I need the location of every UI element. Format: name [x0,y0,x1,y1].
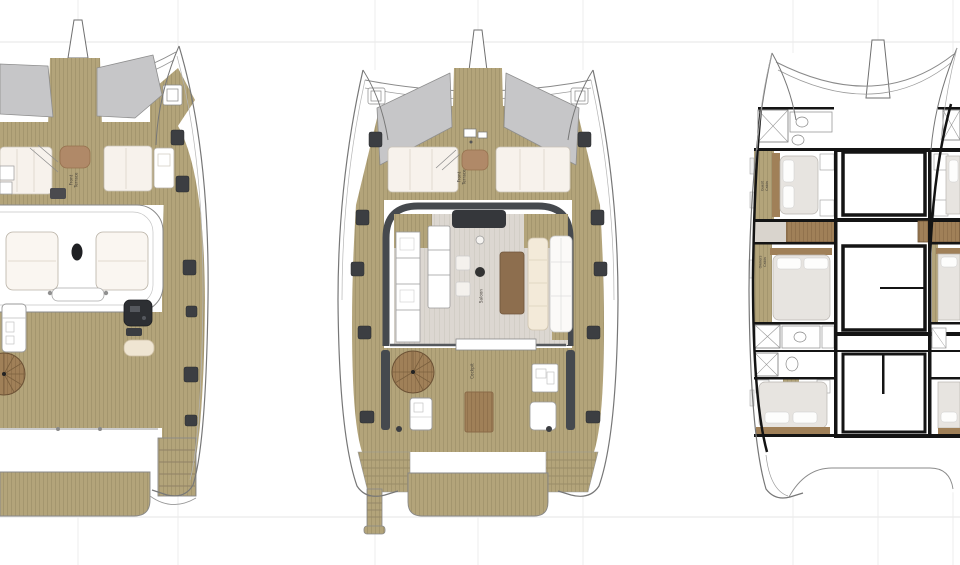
saloon-label: Saloon [479,289,484,303]
aft-head [754,352,836,377]
saloon: Saloon [384,200,572,350]
svg-text:Terrace: Terrace [74,172,79,189]
cockpit-table [465,392,493,432]
vanity [782,326,820,348]
mast [866,40,890,98]
galley-island [428,226,450,308]
windshield-bar [52,288,104,301]
flybridge-deck-plan: Front Terrace [0,20,208,516]
cockpit-fridge [410,398,432,430]
bow-locker [163,85,182,105]
sofa [528,238,548,330]
pillow [949,160,958,182]
deck-plans-drawing: Front Terrace [0,0,960,565]
aft-cabin [756,380,830,434]
deck-plans-canvas: Front Terrace [0,0,960,565]
bed-headboard [936,248,960,254]
spiral-staircase [392,351,434,393]
chaise-lounger [462,150,488,170]
helm-seat [532,364,558,392]
bed-headboard [938,428,960,434]
guest-cabin-label: Guest Cabin [761,180,770,191]
bed-headboard [756,427,830,434]
coachroof [0,205,163,312]
svg-text:Guest: Guest [761,180,765,191]
mast [68,20,88,58]
sunbed [550,236,572,332]
toilet [792,135,804,145]
svg-text:Owners: Owners [759,255,763,268]
tv-console [452,210,506,228]
pillow [777,258,801,269]
svg-text:Cockpit: Cockpit [470,363,475,379]
pillow [783,160,794,182]
owners-bathroom [754,324,836,350]
svg-text:Saloon: Saloon [479,289,484,303]
lower-deck-plan: Guest Cabin Owners Cabin [749,40,960,498]
svg-text:Cabin: Cabin [763,257,767,267]
companionway-steps [786,221,836,242]
cockpit-seat [530,402,556,430]
sliding-door [456,339,536,350]
svg-text:Terrace: Terrace [462,169,467,186]
main-deck-plan: Front Terrace [338,30,618,534]
svg-text:Cabin: Cabin [765,181,769,191]
pillow [804,258,828,269]
bed-headboard [772,153,780,217]
pillow [765,412,789,423]
deck-hatch-oval [72,244,83,261]
transom-steps [158,438,196,496]
chaise-lounger [60,146,90,168]
ottoman [124,340,154,356]
galley-counter [396,232,420,342]
pillow [793,412,817,423]
cockpit-label: Cockpit [470,363,475,379]
pillow [941,412,957,422]
companionway-steps [918,221,960,242]
swim-platform [408,473,548,516]
owners-cabin-label: Owners Cabin [759,255,768,268]
step-pad [50,188,66,199]
grill [124,300,152,326]
bed-headboard [770,248,832,255]
pillow [941,257,957,267]
pillow [783,186,794,208]
dining-table [500,252,524,314]
toilet [786,357,798,371]
port-hull: Guest Cabin Owners Cabin [749,107,836,452]
